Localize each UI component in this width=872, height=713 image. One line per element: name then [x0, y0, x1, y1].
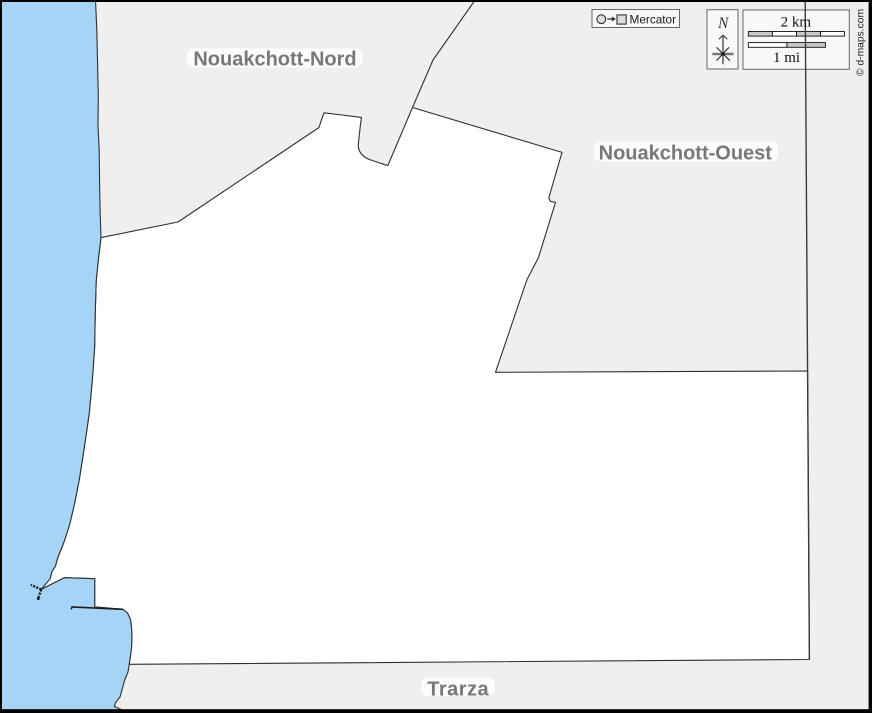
svg-text:Mercator: Mercator — [630, 13, 677, 27]
svg-text:2 km: 2 km — [781, 15, 812, 31]
svg-text:N: N — [717, 15, 730, 32]
svg-text:Trarza: Trarza — [427, 678, 489, 700]
svg-text:Nouakchott-Ouest: Nouakchott-Ouest — [599, 143, 773, 165]
svg-text:© d-maps.com: © d-maps.com — [856, 9, 867, 76]
svg-text:1 mi: 1 mi — [773, 50, 800, 66]
svg-text:Nouakchott-Nord: Nouakchott-Nord — [193, 49, 356, 71]
